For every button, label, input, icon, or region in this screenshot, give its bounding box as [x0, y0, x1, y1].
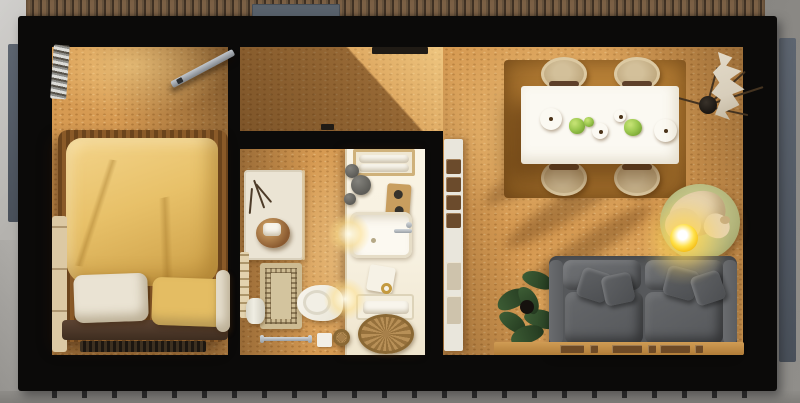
shower-glass [302, 170, 305, 260]
rolled-towel [363, 301, 409, 314]
glowing-ball-lamp [670, 224, 698, 252]
chair-backrest [622, 164, 652, 170]
stool-towel [263, 223, 281, 236]
dinner-plate [654, 119, 677, 142]
shower-stool [256, 218, 290, 248]
dining-chair [541, 160, 587, 196]
door-handle [176, 77, 184, 84]
dinner-plate [540, 108, 562, 130]
wall-ladder [50, 45, 70, 100]
bath-rug [260, 263, 302, 329]
wall-ledge [494, 342, 744, 355]
interior-doormat [372, 47, 428, 54]
towel-rail [260, 337, 312, 341]
shelf-box [446, 262, 461, 290]
plate-center [664, 129, 668, 133]
book [560, 345, 584, 353]
faucet [394, 229, 412, 233]
yellow-pillow [151, 277, 225, 327]
bowl-center [599, 130, 603, 134]
trash-bin [246, 298, 265, 324]
book [648, 345, 656, 353]
book [590, 345, 598, 353]
shelf-box [446, 159, 461, 174]
side-cushion [216, 270, 230, 332]
drain [371, 238, 376, 243]
counter-light [324, 278, 366, 320]
wall-shelf-unit [444, 139, 463, 351]
living-floor [443, 47, 743, 355]
hall-floor [240, 47, 443, 131]
facade-panel-right [779, 38, 796, 362]
gold-ring-dish [381, 283, 392, 294]
book [660, 345, 690, 353]
bathroom-floor [240, 149, 425, 355]
decor-stone [344, 193, 356, 205]
floor-track-mark [321, 124, 334, 130]
duvet-fold [69, 156, 124, 270]
salad-greens [584, 117, 594, 127]
soap-dispenser [394, 190, 404, 200]
rattan-basket [358, 314, 414, 354]
book [612, 345, 642, 353]
rail-post [308, 335, 312, 343]
shelf-box [446, 195, 461, 210]
foundation-ticks [52, 391, 764, 398]
small-bowl [592, 123, 608, 139]
hall-lighting [240, 47, 443, 131]
soap-box [317, 333, 332, 347]
salad-greens [569, 118, 585, 134]
shelf-box [446, 296, 461, 324]
book [695, 345, 703, 353]
small-bowl [614, 110, 626, 122]
small-basket [333, 329, 350, 346]
salad-greens [624, 119, 642, 136]
foot-vent [80, 341, 206, 352]
chair-backrest [549, 164, 579, 170]
counter-light [328, 213, 370, 255]
bedroom-floor [52, 47, 228, 355]
plate-center [549, 117, 553, 121]
open-door-leaf [170, 49, 235, 88]
rug-center [271, 273, 291, 319]
decor-stone [351, 175, 371, 195]
towel [359, 164, 409, 172]
dining-chair [614, 160, 660, 196]
shelf-box [446, 213, 461, 228]
shelf-box [446, 177, 461, 192]
towel-niche [353, 149, 415, 176]
black-vase [699, 96, 717, 114]
faucet-handle [406, 222, 412, 228]
duvet-fold [128, 193, 203, 284]
duvet [66, 138, 218, 286]
floorplan-scene [0, 0, 800, 403]
bowl-center [619, 115, 623, 119]
white-pillow [73, 273, 149, 324]
rail-post [260, 335, 264, 343]
plant-pot [520, 300, 534, 314]
sofa-armrest [549, 260, 563, 344]
throw-pillow [600, 271, 636, 307]
towel [359, 155, 409, 163]
